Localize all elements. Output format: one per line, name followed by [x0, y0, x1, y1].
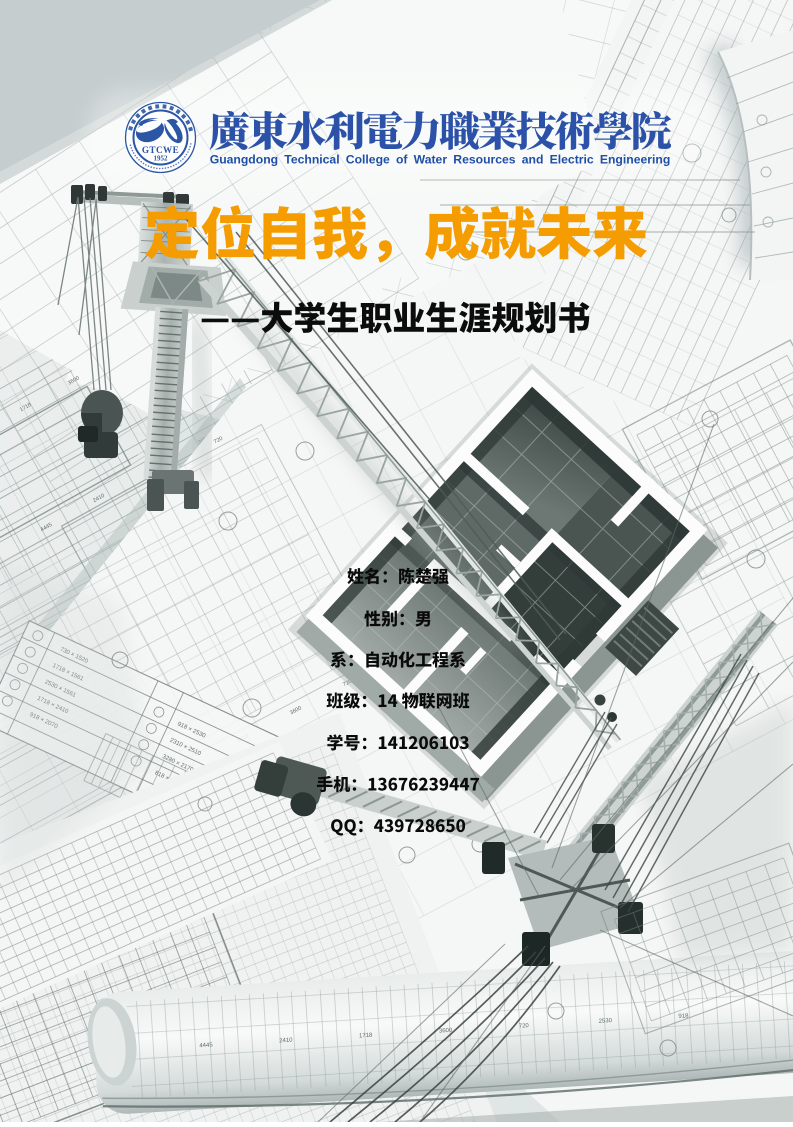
svg-text:GTCWE: GTCWE	[142, 145, 179, 155]
svg-text:4445: 4445	[199, 1042, 213, 1049]
svg-text:720: 720	[519, 1023, 530, 1030]
svg-text:2530: 2530	[598, 1018, 612, 1025]
svg-text:1718: 1718	[359, 1033, 373, 1040]
svg-text:918: 918	[678, 1013, 689, 1020]
svg-text:Guangdong Technical College: Guangdong Technical College of Water Res…	[210, 153, 671, 167]
svg-text:1952: 1952	[154, 155, 169, 163]
svg-text:2410: 2410	[279, 1038, 293, 1045]
